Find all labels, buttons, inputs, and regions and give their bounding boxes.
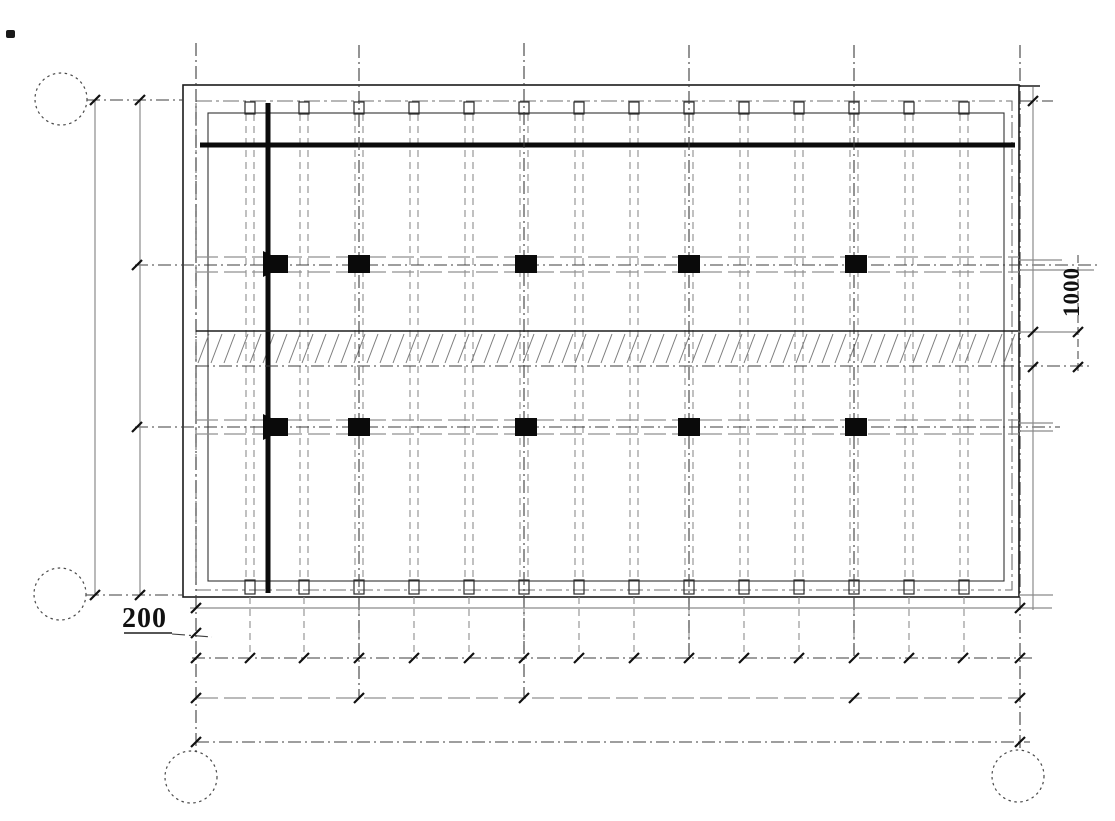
- hatch-stroke: [510, 334, 521, 363]
- hatch-stroke: [978, 334, 989, 363]
- hatch-stroke: [913, 334, 924, 363]
- wall-rect: [208, 113, 1004, 581]
- hatch-stroke: [211, 334, 222, 363]
- hatch-stroke: [757, 334, 768, 363]
- hatch-stroke: [874, 334, 885, 363]
- rib-end-mark: [464, 102, 474, 114]
- hatch-stroke: [705, 334, 716, 363]
- hatch-stroke: [380, 334, 391, 363]
- hatch-stroke: [575, 334, 586, 363]
- grid-bubble: [35, 73, 87, 125]
- hatch-stroke: [887, 334, 898, 363]
- rib-end-mark: [245, 580, 255, 594]
- hatch-stroke: [861, 334, 872, 363]
- hatch-stroke: [692, 334, 703, 363]
- hatch-stroke: [250, 334, 261, 363]
- hatch-stroke: [198, 334, 209, 363]
- column-flag-marker: [263, 414, 288, 440]
- hatch-stroke: [419, 334, 430, 363]
- hatch-stroke: [588, 334, 599, 363]
- column-flag-marker: [263, 251, 288, 277]
- wall-rect: [183, 85, 1019, 597]
- rib-end-mark: [299, 102, 309, 114]
- column-marker: [678, 418, 700, 436]
- hatch-stroke: [614, 334, 625, 363]
- hatch-stroke: [328, 334, 339, 363]
- column-marker: [845, 255, 867, 273]
- structural-plan: 200 1000: [0, 0, 1115, 821]
- rib-end-mark: [245, 102, 255, 114]
- hatch-stroke: [224, 334, 235, 363]
- hatch-stroke: [562, 334, 573, 363]
- dimension-label-1000-text: 1000: [1059, 267, 1085, 317]
- rib-end-mark: [904, 580, 914, 594]
- hatch-stroke: [926, 334, 937, 363]
- hatch-stroke: [549, 334, 560, 363]
- column-marker: [348, 418, 370, 436]
- rib-end-mark: [739, 580, 749, 594]
- hatch-stroke: [952, 334, 963, 363]
- hatch-stroke: [744, 334, 755, 363]
- rib-end-mark: [299, 580, 309, 594]
- grid-bubble: [992, 750, 1044, 802]
- hatch-stroke: [484, 334, 495, 363]
- hatch-stroke: [1004, 334, 1015, 363]
- hatch-stroke: [367, 334, 378, 363]
- rib-end-mark: [464, 580, 474, 594]
- hatch-stroke: [965, 334, 976, 363]
- hatch-stroke: [991, 334, 1002, 363]
- column-marker: [348, 255, 370, 273]
- hatch-stroke: [406, 334, 417, 363]
- rib-end-mark: [629, 102, 639, 114]
- hatch-stroke: [601, 334, 612, 363]
- rib-end-mark: [739, 102, 749, 114]
- hatch-stroke: [640, 334, 651, 363]
- hatch-stroke: [796, 334, 807, 363]
- hatch-stroke: [627, 334, 638, 363]
- hatch-stroke: [783, 334, 794, 363]
- dimension-label-200: 200: [122, 608, 167, 630]
- hatch-stroke: [809, 334, 820, 363]
- rib-end-mark: [574, 580, 584, 594]
- grid-bubble: [34, 568, 86, 620]
- hatch-stroke: [835, 334, 846, 363]
- tick-mark: [574, 653, 584, 663]
- hatch-stroke: [276, 334, 287, 363]
- hatch-stroke: [445, 334, 456, 363]
- rib-end-mark: [794, 580, 804, 594]
- column-marker: [845, 418, 867, 436]
- rib-end-mark: [409, 102, 419, 114]
- rib-end-mark: [629, 580, 639, 594]
- rib-end-mark: [794, 102, 804, 114]
- grid-bubble: [165, 751, 217, 803]
- hatch-stroke: [497, 334, 508, 363]
- rib-end-mark: [959, 580, 969, 594]
- hatch-stroke: [458, 334, 469, 363]
- rib-end-mark: [574, 102, 584, 114]
- rib-end-mark: [904, 102, 914, 114]
- wall-rect: [196, 101, 1012, 590]
- rib-end-mark: [409, 580, 419, 594]
- column-marker: [515, 255, 537, 273]
- column-marker: [515, 418, 537, 436]
- hatch-stroke: [341, 334, 352, 363]
- hatch-stroke: [653, 334, 664, 363]
- plan-drawing: [0, 0, 1115, 821]
- hatch-stroke: [822, 334, 833, 363]
- hatch-stroke: [289, 334, 300, 363]
- hatch-stroke: [432, 334, 443, 363]
- hatch-stroke: [770, 334, 781, 363]
- hatch-stroke: [536, 334, 547, 363]
- hatch-stroke: [718, 334, 729, 363]
- rib-end-mark: [959, 102, 969, 114]
- hatch-stroke: [666, 334, 677, 363]
- column-marker: [678, 255, 700, 273]
- dimension-label-1000: 1000: [1045, 265, 1099, 319]
- hatch-stroke: [393, 334, 404, 363]
- hatch-stroke: [939, 334, 950, 363]
- hatch-stroke: [315, 334, 326, 363]
